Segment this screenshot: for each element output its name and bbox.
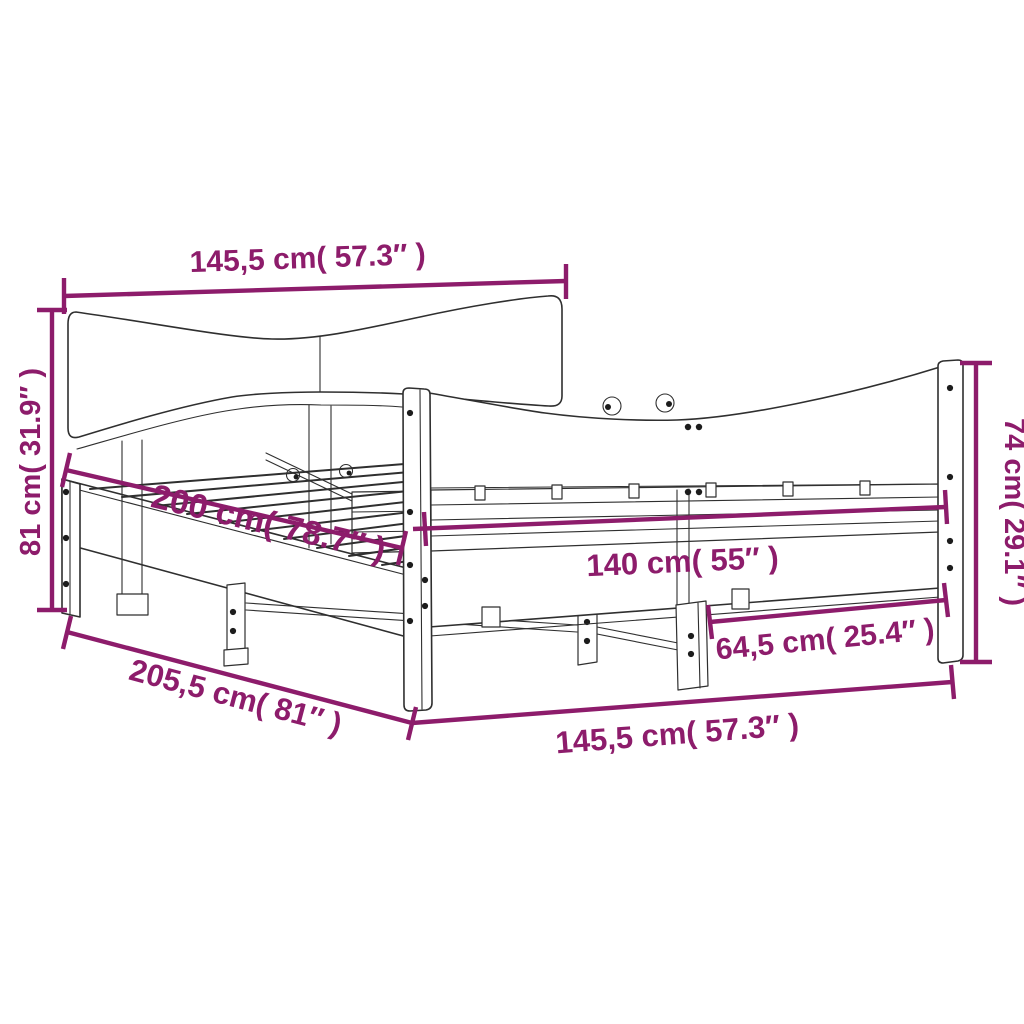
middle-leg [224, 583, 248, 666]
slat-notch [629, 484, 639, 498]
footboard-center-leg [676, 601, 708, 690]
slat-notch [783, 482, 793, 496]
headboard-width-label: 145,5 cm( 57.3″ ) [189, 238, 426, 279]
footboard [429, 367, 940, 636]
slat-notch [860, 481, 870, 495]
footboard-left-post [403, 388, 432, 711]
head-corner-leg [62, 479, 80, 617]
bracket-notch [732, 589, 749, 609]
headboard-left-post-foot [117, 594, 148, 615]
cam-lock-icon [603, 394, 674, 415]
total-width-label: 145,5 cm( 57.3″ ) [554, 707, 800, 761]
slat-notch [475, 486, 485, 500]
bracket-notch [482, 607, 500, 627]
slat-notch [706, 483, 716, 497]
slat-notch [552, 485, 562, 499]
diagram-canvas: 145,5 cm( 57.3″ ) 81 cm( 31.9″ ) 200 cm(… [0, 0, 1024, 1024]
center-rail-leg [578, 610, 597, 665]
footboard-right-post [938, 360, 963, 663]
headboard-height-label: 81 cm( 31.9″ ) [15, 368, 47, 556]
bed-frame-diagram: 145,5 cm( 57.3″ ) 81 cm( 31.9″ ) 200 cm(… [0, 0, 1024, 1024]
footboard-height-label: 74 cm( 29.1″ ) [998, 418, 1024, 606]
dim-footboard-height [960, 363, 992, 662]
